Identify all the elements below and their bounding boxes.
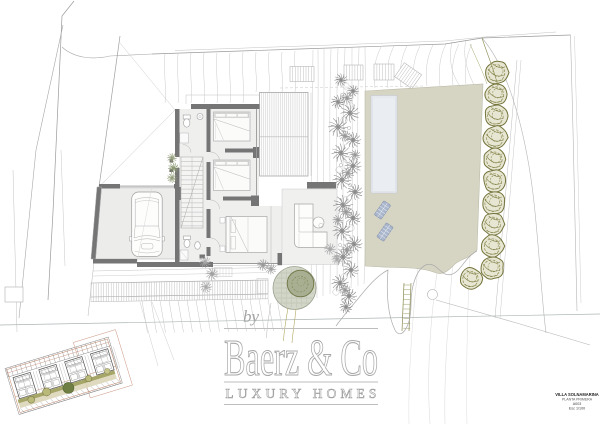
svg-text:VILLA SOLNAMARINA: VILLA SOLNAMARINA: [555, 392, 599, 397]
svg-text:Esc 1/100: Esc 1/100: [569, 407, 585, 411]
svg-text:by: by: [243, 307, 260, 326]
svg-text:Baerz & Co: Baerz & Co: [224, 329, 378, 387]
svg-text:LUXURY HOMES: LUXURY HOMES: [225, 386, 380, 401]
svg-text:PLANTA PRIMERA: PLANTA PRIMERA: [562, 398, 593, 402]
svg-text:A003: A003: [573, 402, 582, 406]
